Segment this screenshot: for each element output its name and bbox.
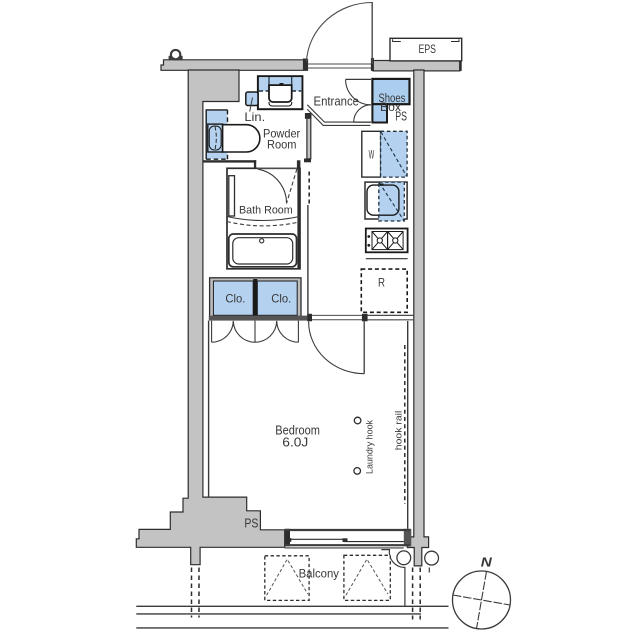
- svg-text:Lin.: Lin.: [244, 110, 265, 124]
- svg-text:Entrance: Entrance: [314, 94, 360, 109]
- svg-text:R: R: [378, 275, 385, 289]
- svg-text:Bath Room: Bath Room: [239, 204, 293, 216]
- svg-text:Laundry hook: Laundry hook: [365, 420, 376, 474]
- svg-text:Room: Room: [267, 138, 297, 152]
- svg-text:N: N: [481, 555, 493, 570]
- svg-text:Clo.: Clo.: [271, 292, 291, 306]
- svg-text:hook rail: hook rail: [393, 411, 404, 451]
- svg-text:Balcony: Balcony: [299, 568, 340, 580]
- svg-text:Clo.: Clo.: [225, 292, 245, 306]
- svg-text:EPS: EPS: [419, 42, 437, 56]
- svg-text:PS: PS: [244, 516, 258, 531]
- svg-text:W: W: [369, 150, 375, 162]
- svg-text:PS: PS: [395, 109, 407, 123]
- svg-text:6.0J: 6.0J: [282, 435, 308, 449]
